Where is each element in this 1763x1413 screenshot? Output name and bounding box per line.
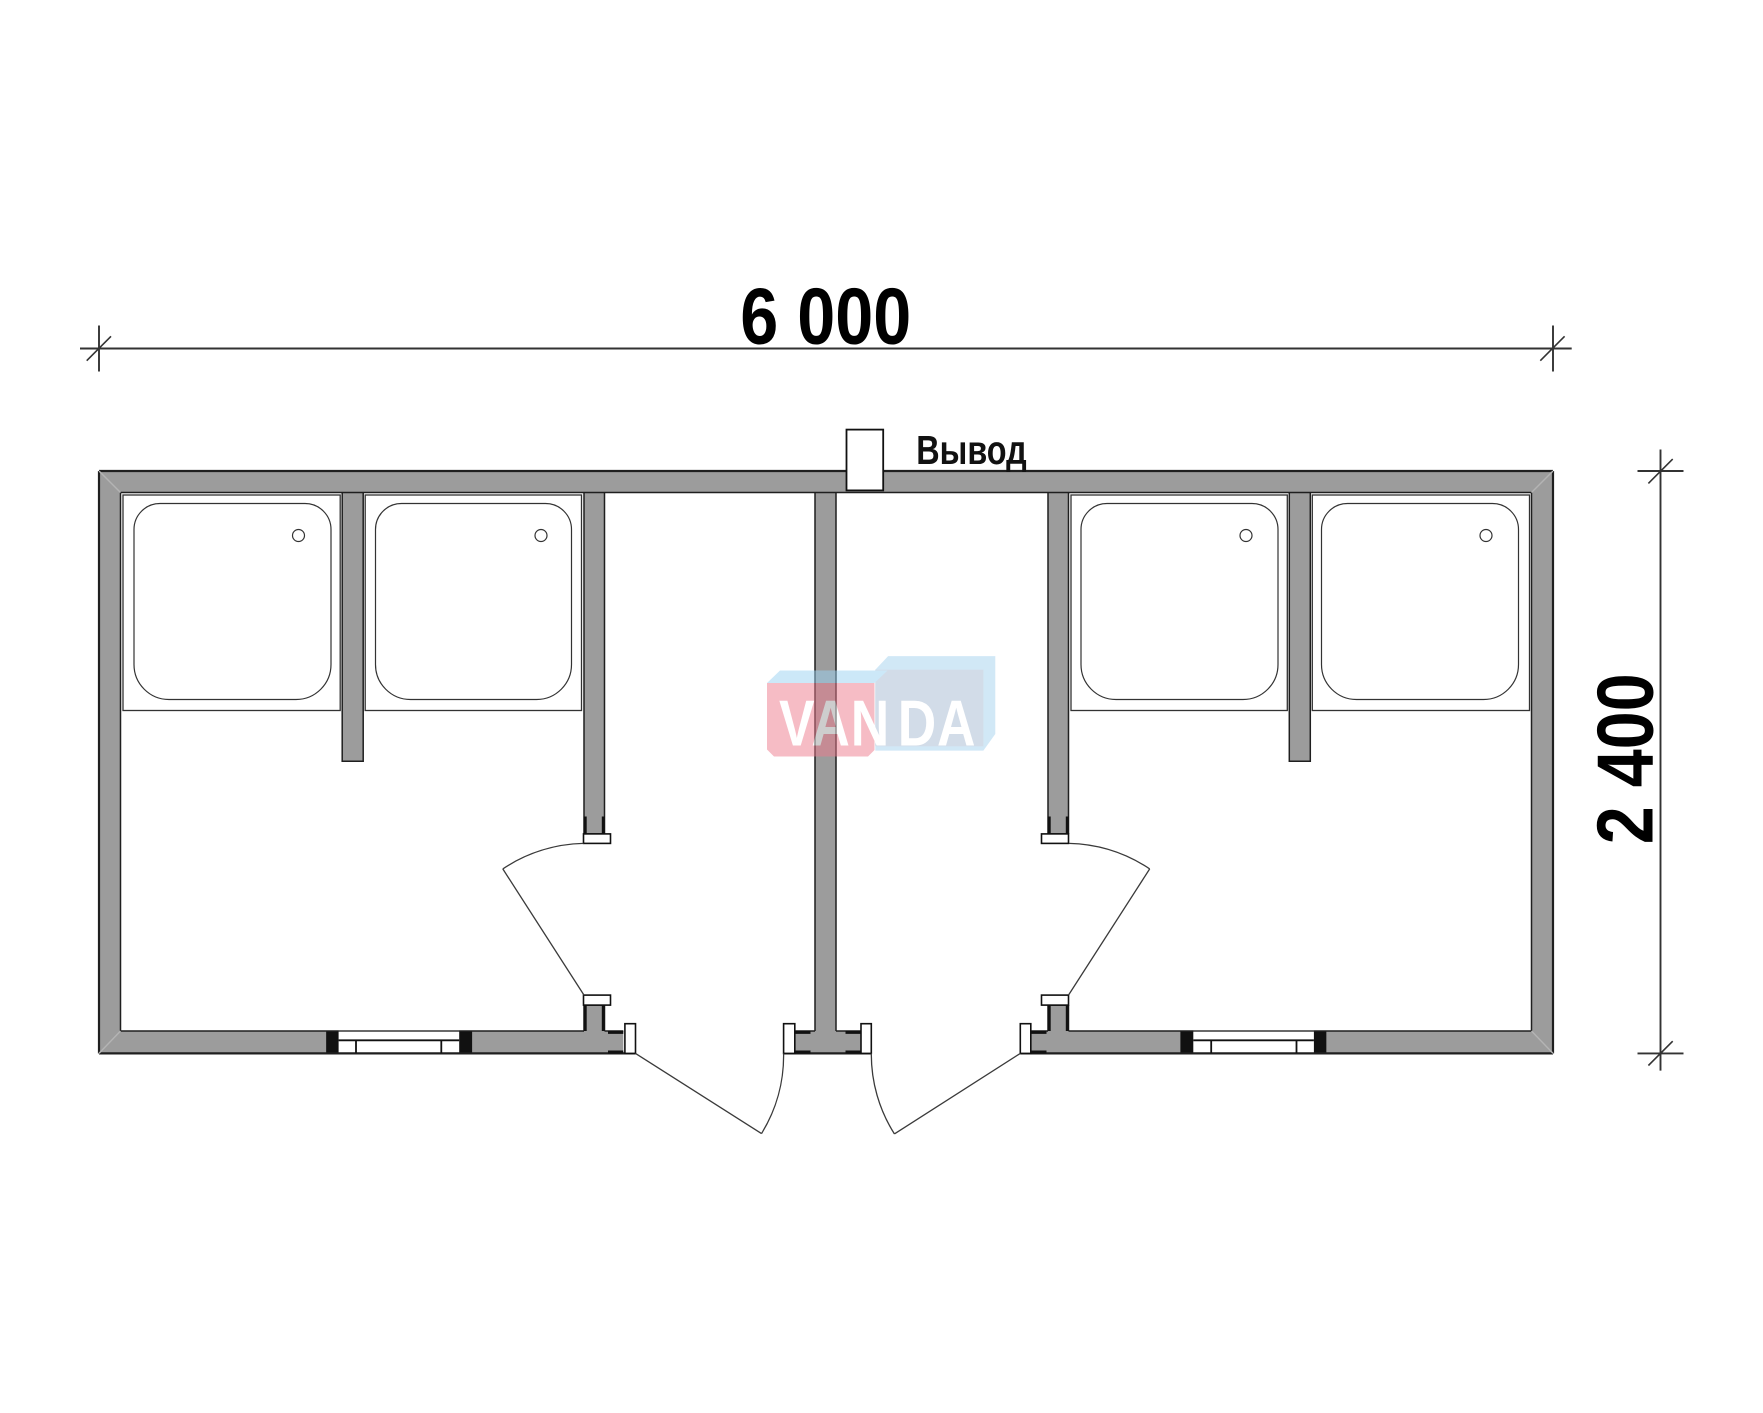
svg-text:VAN: VAN	[779, 686, 890, 759]
svg-text:6 000: 6 000	[740, 271, 911, 360]
svg-text:2 400: 2 400	[1580, 673, 1669, 844]
svg-text:DA: DA	[898, 686, 977, 759]
svg-text:Вывод: Вывод	[916, 428, 1026, 473]
